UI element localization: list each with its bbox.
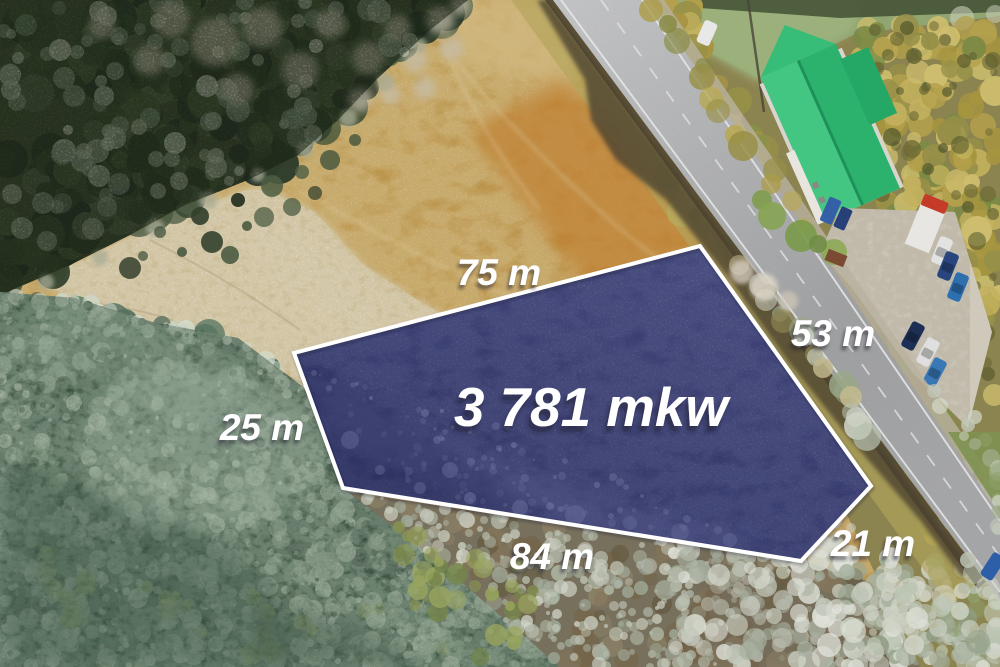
svg-text:3 781 mkw: 3 781 mkw: [454, 376, 731, 438]
svg-text:21 m: 21 m: [830, 523, 915, 564]
svg-text:84 m: 84 m: [510, 536, 594, 577]
svg-text:25 m: 25 m: [219, 407, 304, 448]
svg-text:53 m: 53 m: [791, 313, 875, 354]
svg-text:75 m: 75 m: [457, 252, 541, 293]
